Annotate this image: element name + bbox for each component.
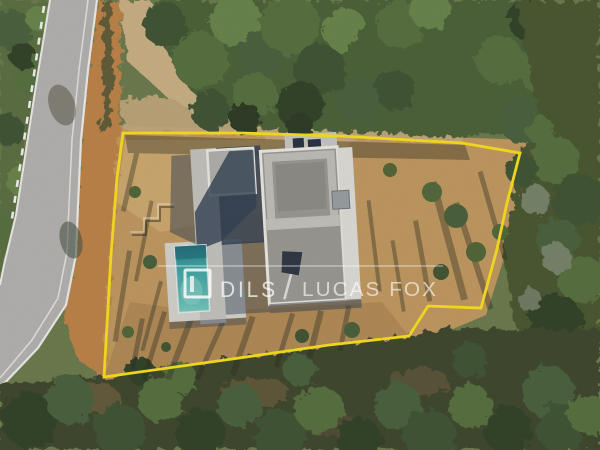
watermark-separator: /	[283, 269, 293, 307]
aerial-photo: DILS / LUCAS FOX	[0, 0, 600, 450]
photo-grain	[0, 0, 600, 450]
watermark-brand-left: DILS	[220, 277, 278, 302]
scene-svg: DILS / LUCAS FOX	[0, 0, 600, 450]
watermark-brand-right: LUCAS FOX	[302, 278, 438, 301]
